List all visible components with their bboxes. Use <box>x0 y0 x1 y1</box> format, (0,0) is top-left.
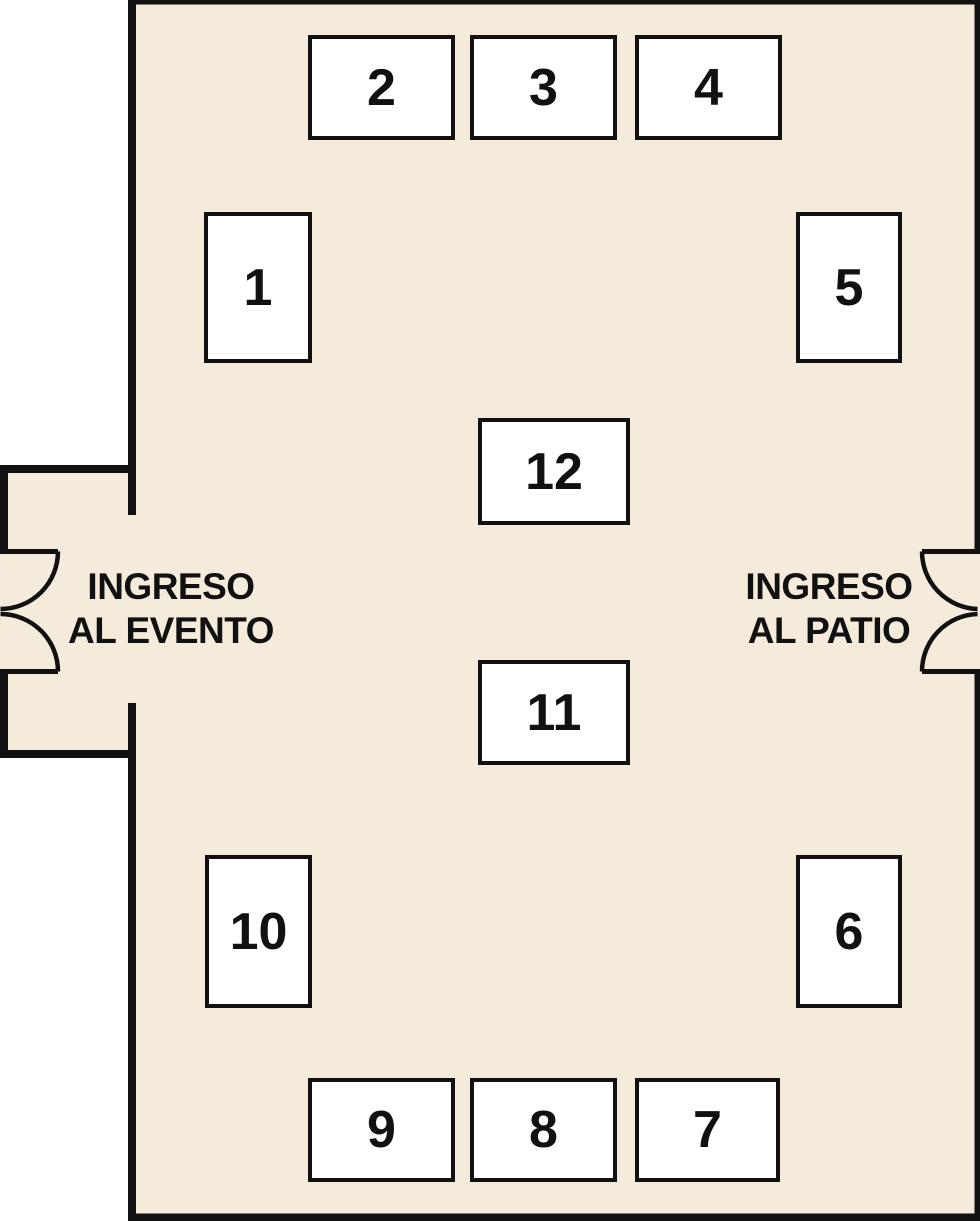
booth-7: 7 <box>635 1078 780 1182</box>
entrance-label-patio-line2: AL PATIO <box>698 609 960 653</box>
booth-1: 1 <box>204 212 312 363</box>
entrance-label-event: INGRESO AL EVENTO <box>40 565 302 653</box>
entrance-label-patio-line1: INGRESO <box>698 565 960 609</box>
booth-8: 8 <box>470 1078 617 1182</box>
booth-9: 9 <box>308 1078 455 1182</box>
booth-6: 6 <box>796 855 902 1008</box>
entrance-label-event-line2: AL EVENTO <box>40 609 302 653</box>
booth-2: 2 <box>308 35 455 140</box>
entrance-label-patio: INGRESO AL PATIO <box>698 565 960 653</box>
entrance-label-event-line1: INGRESO <box>40 565 302 609</box>
booth-5: 5 <box>796 212 902 363</box>
booth-12: 12 <box>478 418 630 525</box>
booth-3: 3 <box>470 35 617 140</box>
booth-11: 11 <box>478 660 630 765</box>
floor-plan: 1 2 3 4 5 6 7 8 9 10 11 12 INGRESO AL EV… <box>0 0 980 1221</box>
booth-10: 10 <box>205 855 312 1008</box>
booth-4: 4 <box>635 35 782 140</box>
